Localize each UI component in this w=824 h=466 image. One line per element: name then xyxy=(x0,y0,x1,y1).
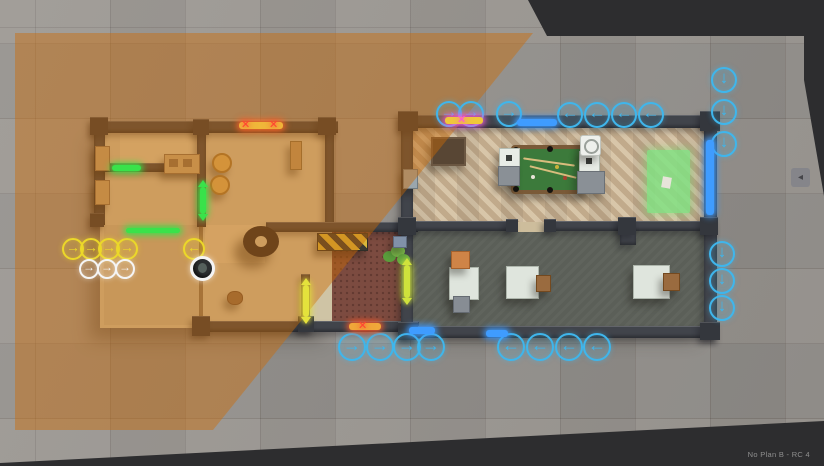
blocked-door-x-icon: ✕ xyxy=(358,319,367,332)
door-green-horizontal[interactable] xyxy=(112,165,141,171)
waypoint-arrow-icon-blue-bottom-left[interactable]: ← xyxy=(555,333,583,361)
waypoint-arrow-icon-blue-right-down-upper[interactable]: ↓ xyxy=(711,99,737,125)
waypoint-arrow-icon-blue-top-left[interactable]: ← xyxy=(584,102,610,128)
window-green[interactable] xyxy=(126,228,180,233)
waypoint-arrow-icon-yellow-right[interactable]: → xyxy=(116,238,138,260)
door-yellow-vertical-2[interactable] xyxy=(404,265,410,298)
waypoint-arrow-icon-blue-right-down-lower[interactable]: ↓ xyxy=(709,268,735,294)
waypoint-arrow-icon-blue-bottom-left[interactable]: ← xyxy=(583,333,611,361)
agent-unit[interactable] xyxy=(190,256,215,281)
waypoint-arrow-icon-blue-bottom-right[interactable]: → xyxy=(366,333,394,361)
waypoint-arrow-icon-blue-bottom-right[interactable]: → xyxy=(338,333,366,361)
plan-markers-layer: →→→→←→→→→→→←←←←→→→→←←←←↓↓↓↓↓↓✕✕✕✕ xyxy=(0,0,824,466)
door-green-vertical-arrow-tip xyxy=(198,214,208,221)
door-yellow-vertical-1[interactable] xyxy=(303,285,309,317)
door-blue-top[interactable] xyxy=(517,119,557,126)
door-yellow-vertical-2-arrow-tip xyxy=(402,258,412,265)
waypoint-arrow-icon-white-right[interactable]: → xyxy=(97,259,117,279)
waypoint-arrow-icon-blue-bottom-left[interactable]: ← xyxy=(497,333,525,361)
waypoint-arrow-icon-blue-right-down-lower[interactable]: ↓ xyxy=(709,241,735,267)
waypoint-arrow-icon-blue-top-left[interactable]: ← xyxy=(557,102,583,128)
game-viewport: →→→→←→→→→→→←←←←→→→→←←←←↓↓↓↓↓↓✕✕✕✕ ◂ No P… xyxy=(0,0,824,466)
waypoint-arrow-icon-blue-right-down-lower[interactable]: ↓ xyxy=(709,295,735,321)
door-green-vertical[interactable] xyxy=(200,187,206,214)
waypoint-arrow-icon-blue-bottom-left[interactable]: ← xyxy=(526,333,554,361)
agent-body xyxy=(198,263,207,273)
door-green-vertical-arrow-tip xyxy=(198,180,208,187)
blocked-door-x-icon: ✕ xyxy=(457,113,466,126)
door-blue-bottom-2[interactable] xyxy=(486,330,508,337)
waypoint-arrow-icon-blue-bottom-right[interactable]: → xyxy=(417,333,445,361)
door-blue-right[interactable] xyxy=(706,140,714,215)
waypoint-arrow-icon-white-right[interactable]: → xyxy=(115,259,135,279)
blocked-door-x-icon: ✕ xyxy=(269,118,278,131)
door-yellow-vertical-1-arrow-tip xyxy=(301,317,311,324)
door-yellow-vertical-2-arrow-tip xyxy=(402,298,412,305)
version-label: No Plan B - RC 4 xyxy=(748,450,810,459)
blocked-door-x-icon: ✕ xyxy=(241,118,250,131)
side-panel-toggle-icon[interactable]: ◂ xyxy=(791,168,810,187)
waypoint-arrow-icon-blue-top-left[interactable]: ← xyxy=(611,102,637,128)
waypoint-arrow-icon-blue-right-down-upper[interactable]: ↓ xyxy=(711,131,737,157)
waypoint-arrow-icon-blue-right-down-upper[interactable]: ↓ xyxy=(711,67,737,93)
door-yellow-vertical-1-arrow-tip xyxy=(301,278,311,285)
waypoint-arrow-icon-blue-top-left[interactable]: ← xyxy=(638,102,664,128)
waypoint-arrow-icon-white-right[interactable]: → xyxy=(79,259,99,279)
door-blue-bottom-1[interactable] xyxy=(409,327,435,334)
